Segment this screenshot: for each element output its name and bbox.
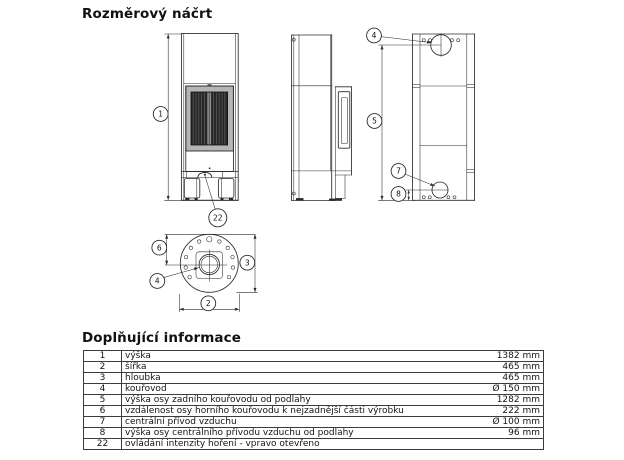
svg-text:4: 4: [155, 277, 160, 286]
row-number: 1: [84, 351, 122, 362]
door-handle: [338, 92, 350, 149]
row-value: [433, 439, 544, 450]
row-value: 465 mm: [433, 373, 544, 384]
table-row: 2 šířka 465 mm: [84, 362, 544, 373]
row-description: kouřovod: [122, 384, 434, 395]
dimension-flue-height: [379, 45, 442, 200]
row-value: 96 mm: [433, 428, 544, 439]
table-row: 8 výška osy centrálního přívodu vzduchu …: [84, 428, 544, 439]
row-number: 5: [84, 395, 122, 406]
table-row: 3 hloubka 465 mm: [84, 373, 544, 384]
balloon-1: 1: [153, 107, 168, 122]
balloon-8: 8: [391, 187, 406, 202]
balloon-4-top: 4: [150, 274, 165, 289]
balloon-5: 5: [367, 114, 382, 129]
balloon-6: 6: [152, 240, 167, 255]
table-row: 5 výška osy zadního kouřovodu od podlahy…: [84, 395, 544, 406]
row-value: 1282 mm: [433, 395, 544, 406]
row-value: Ø 150 mm: [433, 384, 544, 395]
row-value: 465 mm: [433, 362, 544, 373]
row-description: výška osy zadního kouřovodu od podlahy: [122, 395, 434, 406]
balloon-7: 7: [391, 164, 406, 179]
row-description: ovládání intenzity hoření - vpravo otevř…: [122, 439, 434, 450]
page: Rozměrový náčrt: [0, 0, 624, 460]
svg-text:22: 22: [213, 214, 223, 223]
svg-text:7: 7: [396, 167, 401, 176]
row-value: 222 mm: [433, 406, 544, 417]
table-row: 4 kouřovod Ø 150 mm: [84, 384, 544, 395]
table-row: 22 ovládání intenzity hoření - vpravo ot…: [84, 439, 544, 450]
svg-text:2: 2: [206, 299, 211, 308]
balloon-2: 2: [201, 296, 216, 311]
leader-4-back: [381, 37, 431, 45]
svg-text:6: 6: [157, 243, 162, 252]
row-number: 4: [84, 384, 122, 395]
svg-text:1: 1: [158, 110, 163, 119]
balloon-3: 3: [240, 255, 255, 270]
table-row: 6 vzdálenost osy horního kouřovodu k nej…: [84, 406, 544, 417]
row-value: 1382 mm: [433, 351, 544, 362]
dimensional-drawing: 1 22: [0, 0, 624, 332]
row-description: hloubka: [122, 373, 434, 384]
row-description: šířka: [122, 362, 434, 373]
row-description: výška: [122, 351, 434, 362]
leader-22: [205, 176, 215, 209]
row-number: 8: [84, 428, 122, 439]
svg-text:5: 5: [372, 117, 377, 126]
balloon-22: 22: [209, 209, 227, 227]
info-table: 1 výška 1382 mm 2 šířka 465 mm 3 hloubka…: [83, 350, 544, 450]
row-description: výška osy centrálního přívodu vzduchu od…: [122, 428, 434, 439]
table-row: 1 výška 1382 mm: [84, 351, 544, 362]
info-title: Doplňující informace: [82, 330, 241, 346]
row-description: vzdálenost osy horního kouřovodu k nejza…: [122, 406, 434, 417]
row-description: centrální přívod vzduchu: [122, 417, 434, 428]
svg-text:4: 4: [372, 31, 377, 40]
row-number: 7: [84, 417, 122, 428]
row-number: 3: [84, 373, 122, 384]
svg-text:3: 3: [245, 258, 250, 267]
row-number: 2: [84, 362, 122, 373]
row-number: 22: [84, 439, 122, 450]
side-view: [292, 35, 352, 201]
row-value: Ø 100 mm: [433, 417, 544, 428]
back-view: [413, 34, 475, 200]
balloon-4-back: 4: [367, 28, 382, 43]
front-view: [181, 34, 238, 201]
svg-text:8: 8: [396, 190, 401, 199]
table-row: 7 centrální přívod vzduchu Ø 100 mm: [84, 417, 544, 428]
row-number: 6: [84, 406, 122, 417]
